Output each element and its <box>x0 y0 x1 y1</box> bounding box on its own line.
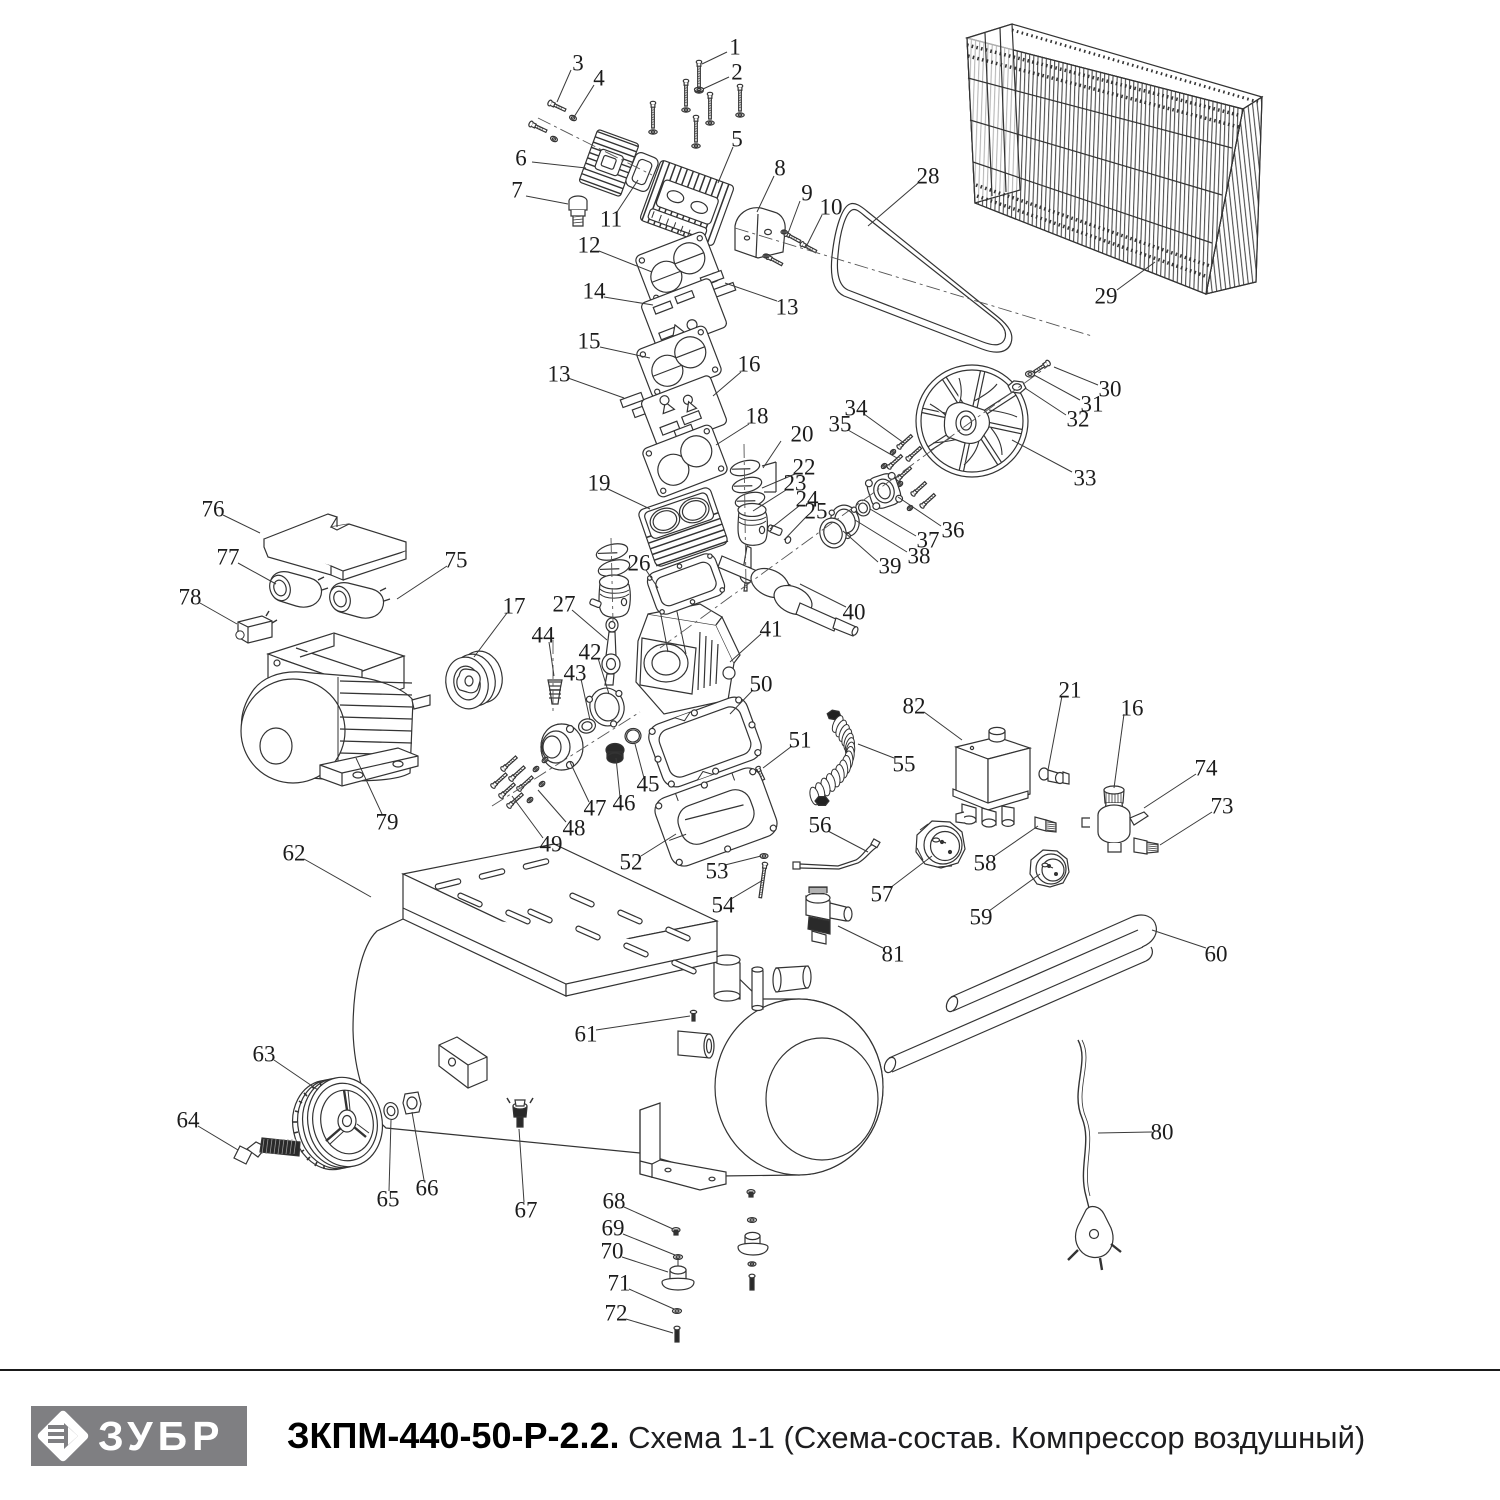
svg-text:66: 66 <box>416 1176 439 1201</box>
svg-text:79: 79 <box>376 810 399 835</box>
svg-text:26: 26 <box>628 551 651 576</box>
svg-text:64: 64 <box>177 1108 201 1133</box>
svg-text:16: 16 <box>1121 696 1144 721</box>
svg-text:57: 57 <box>871 882 894 907</box>
svg-text:12: 12 <box>578 233 601 258</box>
svg-text:ЗУБР: ЗУБР <box>98 1413 224 1459</box>
svg-text:39: 39 <box>879 554 902 579</box>
svg-text:3: 3 <box>572 51 584 76</box>
svg-text:67: 67 <box>515 1198 538 1223</box>
svg-text:71: 71 <box>608 1271 631 1296</box>
svg-text:13: 13 <box>776 295 799 320</box>
svg-text:69: 69 <box>602 1216 625 1241</box>
svg-text:51: 51 <box>789 728 812 753</box>
svg-text:25: 25 <box>805 499 828 524</box>
svg-text:13: 13 <box>548 362 571 387</box>
svg-text:55: 55 <box>893 752 916 777</box>
svg-text:38: 38 <box>908 544 931 569</box>
svg-text:35: 35 <box>829 412 852 437</box>
svg-text:77: 77 <box>217 545 240 570</box>
svg-text:36: 36 <box>942 518 965 543</box>
svg-text:17: 17 <box>503 594 526 619</box>
svg-text:63: 63 <box>253 1042 276 1067</box>
svg-text:29: 29 <box>1095 284 1118 309</box>
svg-text:61: 61 <box>575 1022 598 1047</box>
svg-text:48: 48 <box>563 816 586 841</box>
svg-text:21: 21 <box>1059 678 1082 703</box>
svg-text:53: 53 <box>706 859 729 884</box>
svg-text:49: 49 <box>540 832 563 857</box>
svg-text:32: 32 <box>1067 407 1090 432</box>
svg-text:8: 8 <box>774 156 786 181</box>
svg-text:70: 70 <box>601 1239 624 1264</box>
svg-text:62: 62 <box>283 841 306 866</box>
svg-text:47: 47 <box>584 796 607 821</box>
svg-text:14: 14 <box>583 279 607 304</box>
svg-text:1: 1 <box>729 35 741 60</box>
svg-text:4: 4 <box>593 66 605 91</box>
svg-text:78: 78 <box>179 585 202 610</box>
svg-text:5: 5 <box>731 127 743 152</box>
svg-text:6: 6 <box>515 146 527 171</box>
svg-text:80: 80 <box>1151 1120 1174 1145</box>
svg-text:15: 15 <box>578 329 601 354</box>
svg-text:59: 59 <box>970 905 993 930</box>
svg-text:18: 18 <box>746 404 769 429</box>
svg-text:2: 2 <box>731 60 743 85</box>
svg-text:19: 19 <box>588 471 611 496</box>
svg-text:40: 40 <box>843 600 866 625</box>
svg-text:54: 54 <box>712 893 736 918</box>
svg-text:41: 41 <box>760 617 783 642</box>
svg-text:52: 52 <box>620 850 643 875</box>
svg-text:72: 72 <box>605 1301 628 1326</box>
svg-text:10: 10 <box>820 195 843 220</box>
svg-text:46: 46 <box>613 791 636 816</box>
svg-text:27: 27 <box>553 592 576 617</box>
svg-text:44: 44 <box>532 623 556 648</box>
svg-text:74: 74 <box>1195 756 1219 781</box>
svg-text:16: 16 <box>738 352 761 377</box>
svg-text:58: 58 <box>974 851 997 876</box>
svg-text:56: 56 <box>809 813 832 838</box>
svg-text:43: 43 <box>564 661 587 686</box>
svg-text:ЗКПМ-440-50-Р-2.2. Схема 1-1 (: ЗКПМ-440-50-Р-2.2. Схема 1-1 (Схема-сост… <box>287 1415 1365 1456</box>
svg-text:50: 50 <box>750 672 773 697</box>
svg-text:76: 76 <box>202 497 225 522</box>
svg-text:28: 28 <box>917 164 940 189</box>
svg-text:33: 33 <box>1074 466 1097 491</box>
svg-text:73: 73 <box>1211 794 1234 819</box>
svg-text:20: 20 <box>791 422 814 447</box>
svg-text:81: 81 <box>882 942 905 967</box>
svg-text:75: 75 <box>445 548 468 573</box>
svg-text:68: 68 <box>603 1189 626 1214</box>
svg-text:82: 82 <box>903 694 926 719</box>
svg-text:7: 7 <box>511 178 523 203</box>
svg-text:65: 65 <box>377 1187 400 1212</box>
svg-text:60: 60 <box>1205 942 1228 967</box>
svg-text:9: 9 <box>801 181 813 206</box>
svg-text:11: 11 <box>600 207 622 232</box>
svg-text:45: 45 <box>637 772 660 797</box>
